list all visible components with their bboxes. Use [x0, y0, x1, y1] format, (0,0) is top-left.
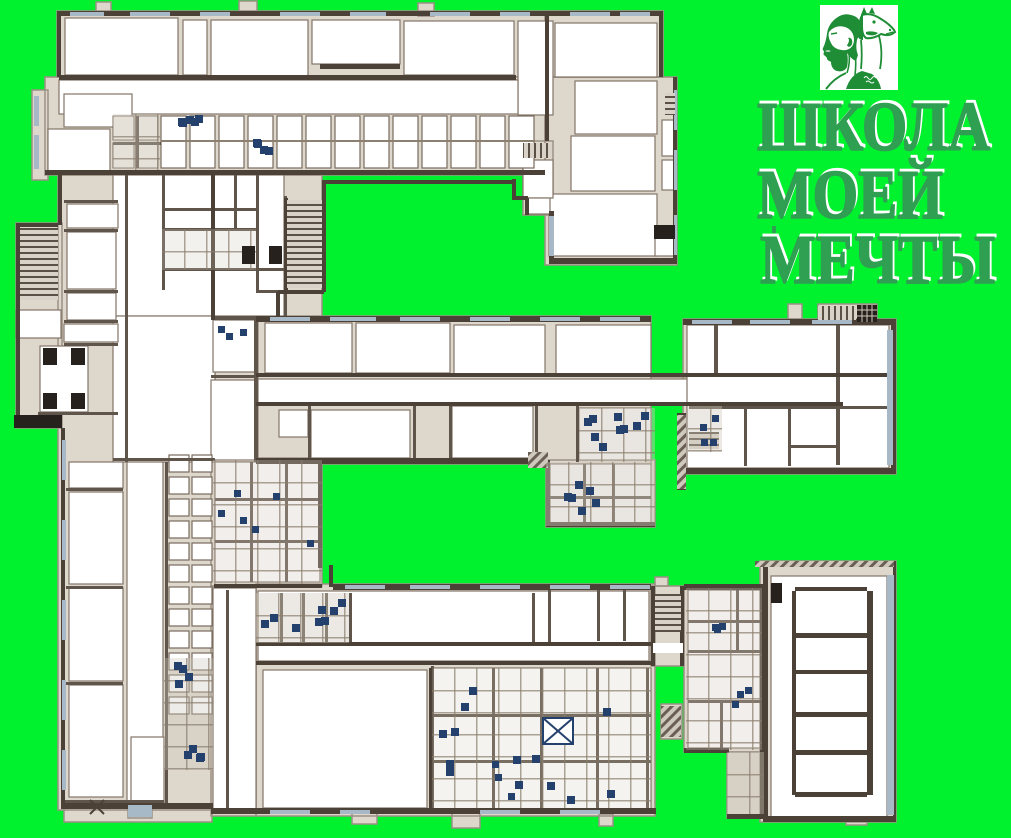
svg-text:МЕЧТЫ: МЕЧТЫ [760, 222, 995, 299]
